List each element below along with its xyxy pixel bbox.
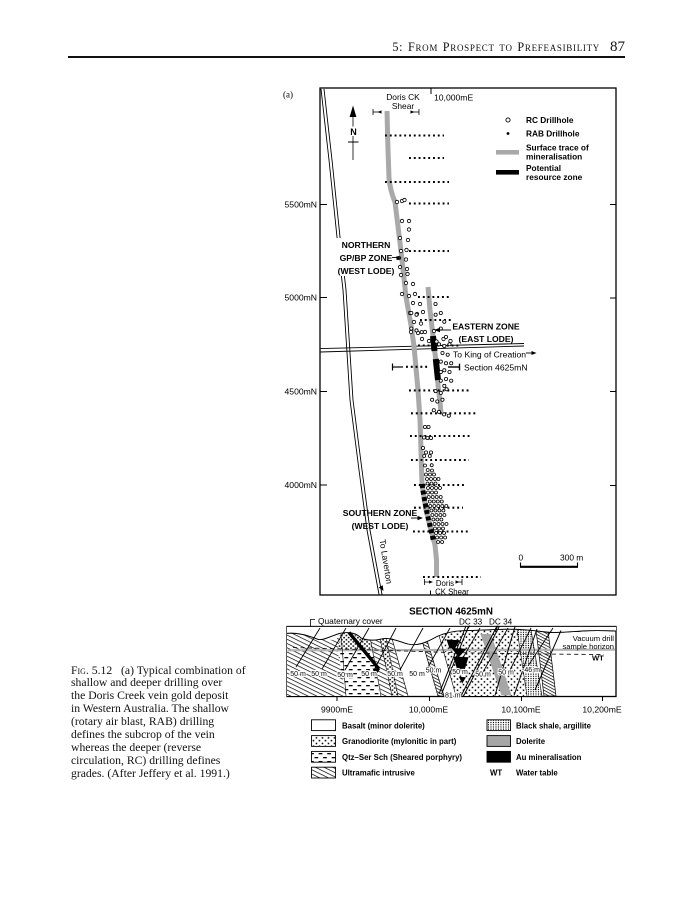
svg-text:4000mN: 4000mN (285, 480, 317, 490)
svg-text:RC Drillhole: RC Drillhole (526, 115, 574, 125)
svg-text:resource zone: resource zone (526, 172, 583, 182)
svg-text:To King of Creation: To King of Creation (453, 350, 526, 360)
svg-text:Ultramafic intrusive: Ultramafic intrusive (342, 769, 415, 778)
svg-text:50 m: 50 m (361, 671, 377, 678)
svg-text:(EAST LODE): (EAST LODE) (459, 334, 514, 344)
svg-text:GP/BP ZONE: GP/BP ZONE (340, 253, 393, 263)
svg-text:50 m: 50 m (426, 668, 442, 675)
svg-text:Section 4625mN: Section 4625mN (464, 363, 528, 373)
svg-text:(WEST LODE): (WEST LODE) (338, 266, 395, 276)
svg-text:50 m: 50 m (387, 671, 403, 678)
svg-text:EASTERN ZONE: EASTERN ZONE (452, 322, 520, 332)
svg-text:50 m: 50 m (452, 669, 468, 676)
svg-text:81 m: 81 m (445, 693, 461, 700)
svg-text:300 m: 300 m (560, 553, 583, 563)
svg-text:NORTHERN: NORTHERN (342, 240, 391, 250)
svg-text:5500mN: 5500mN (285, 200, 317, 210)
svg-text:Water table: Water table (516, 769, 558, 778)
svg-text:RAB Drillhole: RAB Drillhole (526, 129, 580, 139)
svg-text:SECTION 4625mN: SECTION 4625mN (409, 607, 493, 618)
svg-text:Qtz–Ser Sch (Sheared porphyry): Qtz–Ser Sch (Sheared porphyry) (342, 753, 462, 762)
svg-text:CK Shear: CK Shear (435, 588, 469, 597)
svg-text:WT: WT (592, 654, 604, 663)
svg-text:mineralisation: mineralisation (526, 152, 582, 162)
svg-text:10,000mE: 10,000mE (409, 705, 448, 715)
svg-text:50 m: 50 m (475, 672, 491, 679)
svg-text:0: 0 (519, 553, 524, 563)
svg-text:Quaternary cover: Quaternary cover (318, 616, 383, 626)
svg-text:50 m: 50 m (498, 670, 514, 677)
svg-text:DC 33: DC 33 (459, 618, 483, 627)
svg-text:(a): (a) (283, 90, 293, 100)
svg-text:50 m: 50 m (290, 671, 306, 678)
svg-text:50 m: 50 m (409, 671, 425, 678)
svg-text:9900mE: 9900mE (321, 705, 353, 715)
svg-text:10,200mE: 10,200mE (582, 705, 621, 715)
svg-text:50 m: 50 m (337, 672, 353, 679)
svg-text:(WEST LODE): (WEST LODE) (352, 521, 409, 531)
svg-text:Au mineralisation: Au mineralisation (516, 753, 582, 762)
svg-text:WT: WT (490, 769, 502, 778)
svg-text:Basalt (minor dolerite): Basalt (minor dolerite) (342, 721, 425, 730)
svg-text:Black shale, argillite: Black shale, argillite (516, 721, 592, 730)
svg-text:SOUTHERN ZONE: SOUTHERN ZONE (343, 508, 418, 518)
svg-text:5000mN: 5000mN (285, 293, 317, 303)
svg-text:N: N (350, 127, 357, 137)
svg-text:4500mN: 4500mN (285, 387, 317, 397)
svg-text:Shear: Shear (392, 101, 415, 111)
svg-text:10,000mE: 10,000mE (434, 93, 473, 103)
svg-text:Granodiorite (mylonitic in par: Granodiorite (mylonitic in part) (342, 737, 457, 746)
svg-text:DC 34: DC 34 (489, 618, 513, 627)
svg-text:10,100mE: 10,100mE (501, 705, 540, 715)
svg-text:Dolerite: Dolerite (516, 737, 546, 746)
svg-text:-46 m: -46 m (522, 667, 540, 674)
svg-text:sample horizon: sample horizon (563, 642, 615, 651)
svg-text:50 m: 50 m (311, 671, 327, 678)
